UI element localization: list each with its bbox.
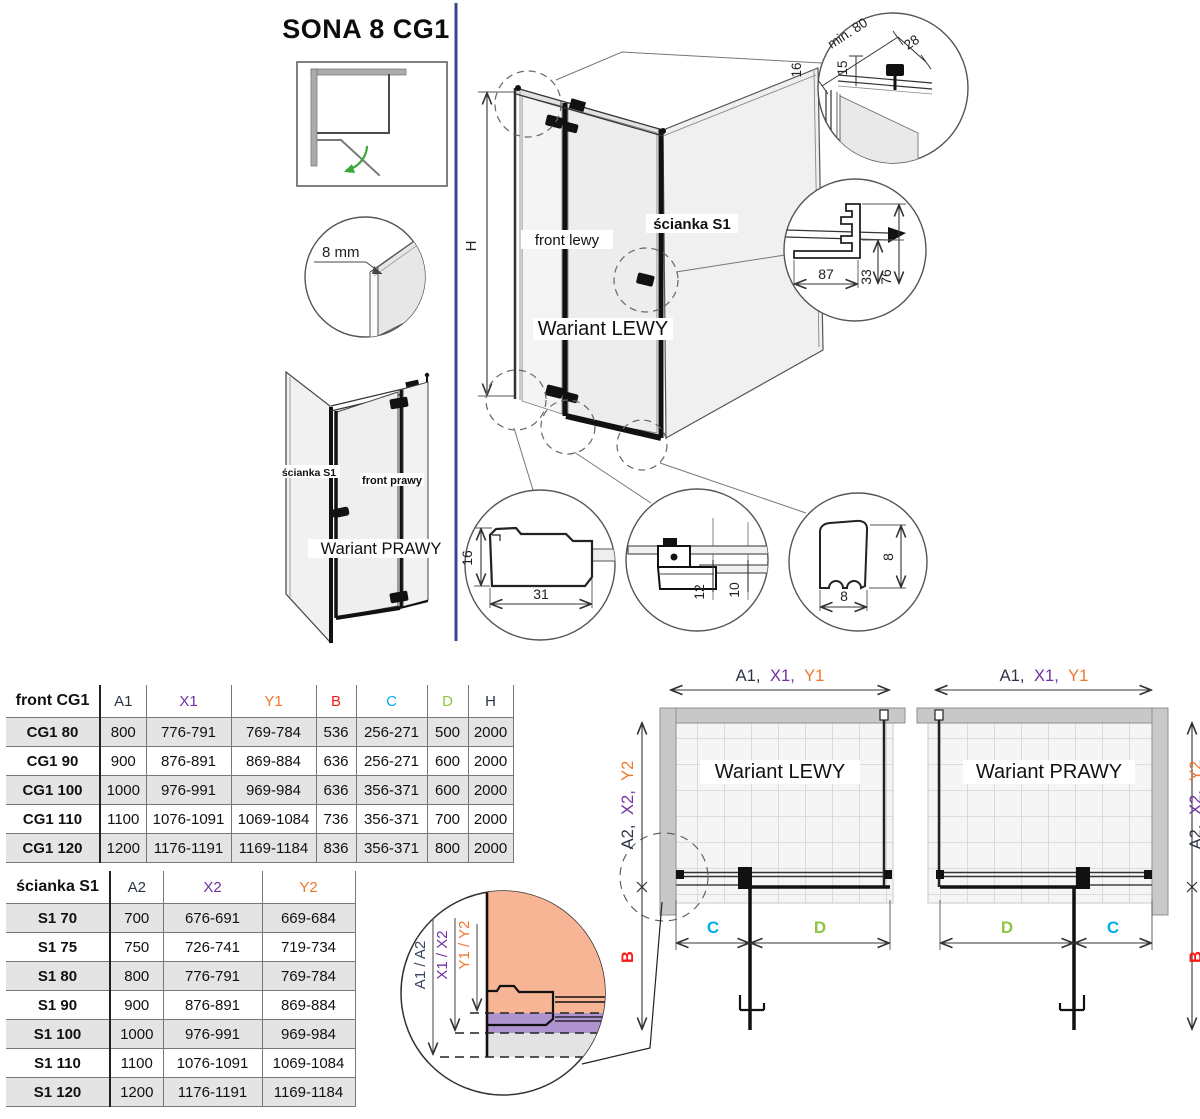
cell: 750 (110, 933, 163, 962)
row-label: S1 75 (6, 933, 110, 962)
row-label: CG1 80 (6, 718, 100, 747)
row-label: S1 70 (6, 904, 110, 933)
dim-x2: X2, (1187, 790, 1200, 815)
cell: 1069-1084 (231, 805, 316, 834)
table-row: S1 80 800 776-791 769-784 (6, 962, 355, 991)
cell: 969-984 (262, 1020, 355, 1049)
range-y1y2-label: Y1 / Y2 (456, 921, 473, 970)
range-x1x2-label: X1 / X2 (434, 930, 451, 979)
dim-a2: A2, (619, 825, 637, 850)
cell: 1169-1184 (231, 834, 316, 863)
cell: 676-691 (163, 904, 262, 933)
glass-thickness-label: 8 mm (322, 244, 360, 261)
glass-thickness-detail: 8 mm (305, 217, 430, 341)
detail-bottom-rail: 12 10 (626, 489, 768, 631)
table-title: front CG1 (6, 685, 100, 718)
wariant-prawy-topview: A1, X1, Y1 A2, X2, Y2 B D C Wariant PRAW… (917, 667, 1200, 1030)
cell: 1100 (100, 805, 146, 834)
cell: 1000 (100, 776, 146, 805)
dim-16: 16 (459, 550, 475, 566)
cell: 769-784 (262, 962, 355, 991)
row-label: S1 120 (6, 1078, 110, 1107)
wariant-lewy-label: Wariant LEWY (538, 318, 668, 340)
pivot-hardware (738, 867, 752, 889)
cell: 700 (110, 904, 163, 933)
cell: 726-741 (163, 933, 262, 962)
cell: 976-991 (146, 776, 231, 805)
wariant-lewy-3d: H front lewy (463, 52, 823, 513)
dim-y2: Y2 (1187, 761, 1200, 781)
cell: 1176-1191 (146, 834, 231, 863)
dim-8-width: 8 (840, 588, 848, 604)
dim-87: 87 (818, 266, 834, 282)
cell: 869-884 (231, 747, 316, 776)
row-label: CG1 90 (6, 747, 100, 776)
pivot-hardware (1076, 867, 1090, 889)
cell: 776-791 (163, 962, 262, 991)
range-zone-a (487, 1033, 617, 1057)
cell: 1176-1191 (163, 1078, 262, 1107)
wariant-prawy-label: Wariant PRAWY (976, 761, 1122, 783)
cell: 1069-1084 (262, 1049, 355, 1078)
dim-x1: X1, (770, 667, 795, 685)
dim-a1x1y1: A1, X1, Y1 (1000, 667, 1089, 685)
scianka-s1-label: ścianka S1 (653, 216, 731, 233)
dim-x2: X2, (619, 790, 637, 815)
dim-76: 76 (878, 269, 894, 285)
cell: 636 (316, 747, 356, 776)
cell: 1100 (110, 1049, 163, 1078)
cell: 1076-1091 (163, 1049, 262, 1078)
detail-wall-profile: 16 31 (459, 490, 618, 640)
cell: 736 (316, 805, 356, 834)
front-prawy-label: front prawy (362, 475, 423, 487)
door-handle (740, 995, 764, 1010)
cell: 1200 (110, 1078, 163, 1107)
dim-C: C (1107, 918, 1119, 937)
cell: 800 (100, 718, 146, 747)
door-handle (1060, 995, 1084, 1010)
cell: 900 (110, 991, 163, 1020)
table-row: S1 120 1200 1176-1191 1169-1184 (6, 1078, 355, 1107)
cell: 836 (316, 834, 356, 863)
dim-a2x2y2: A2, X2, Y2 (1187, 761, 1200, 850)
dim-y1: Y1 (1068, 667, 1088, 685)
col-A2: A2 (110, 871, 163, 904)
cell: 869-884 (262, 991, 355, 1020)
cell: 1169-1184 (262, 1078, 355, 1107)
col-X2: X2 (163, 871, 262, 904)
dim-B: B (619, 951, 637, 963)
cell: 669-684 (262, 904, 355, 933)
row-label: CG1 110 (6, 805, 100, 834)
mounting-range-detail: A1 / A2 X1 / X2 Y1 / Y2 (401, 888, 662, 1095)
dim-12: 12 (691, 584, 707, 600)
dim-H: H (463, 241, 480, 252)
dim-C: C (707, 918, 719, 937)
col-Y2: Y2 (262, 871, 355, 904)
dim-a1x1y1: A1, X1, Y1 (736, 667, 825, 685)
col-X1: X1 (146, 685, 231, 718)
cell: 776-791 (146, 718, 231, 747)
row-label: CG1 100 (6, 776, 100, 805)
detail-handle-profile: 87 33 76 (784, 179, 926, 321)
dim-33: 33 (858, 269, 874, 285)
row-label: CG1 120 (6, 834, 100, 863)
dim-16-top: 16 (789, 62, 804, 77)
dim-x1: X1, (1034, 667, 1059, 685)
dim-D: D (814, 918, 826, 937)
dim-10: 10 (726, 582, 742, 598)
table-row: S1 100 1000 976-991 969-984 (6, 1020, 355, 1049)
table-row: S1 75 750 726-741 719-734 (6, 933, 355, 962)
table-row: S1 110 1100 1076-1091 1069-1084 (6, 1049, 355, 1078)
row-label: S1 90 (6, 991, 110, 1020)
dim-8-height: 8 (880, 553, 896, 561)
cell: 536 (316, 718, 356, 747)
cell: 876-891 (146, 747, 231, 776)
detail-seal-profile: 8 8 (789, 493, 927, 631)
row-label: S1 100 (6, 1020, 110, 1049)
col-A1: A1 (100, 685, 146, 718)
wariant-lewy-label: Wariant LEWY (715, 761, 845, 783)
cell: 1000 (110, 1020, 163, 1049)
dim-y1: Y1 (804, 667, 824, 685)
dim-a2x2y2: A2, X2, Y2 (619, 761, 637, 850)
col-B: B (316, 685, 356, 718)
top-view-icon (297, 62, 447, 186)
range-a1a2-label: A1 / A2 (412, 941, 429, 989)
dim-B: B (1187, 951, 1200, 963)
cell: 769-784 (231, 718, 316, 747)
cell: 969-984 (231, 776, 316, 805)
scianka-s1-label: ścianka S1 (282, 467, 336, 479)
cell: 1200 (100, 834, 146, 863)
cell: 1076-1091 (146, 805, 231, 834)
row-label: S1 110 (6, 1049, 110, 1078)
table-row: S1 70 700 676-691 669-684 (6, 904, 355, 933)
row-label: S1 80 (6, 962, 110, 991)
technical-sheet: SONA 8 CG1 (0, 0, 1200, 1119)
cell: 800 (110, 962, 163, 991)
dim-a2: A2, (1187, 825, 1200, 850)
cell: 976-991 (163, 1020, 262, 1049)
dim-D: D (1001, 918, 1013, 937)
wariant-prawy-label: Wariant PRAWY (321, 540, 442, 558)
dim-a1: A1, (1000, 667, 1025, 685)
top-view-diagrams: A1, X1, Y1 A2, X2, Y2 B C D Wariant LEWY (400, 660, 1200, 1119)
col-Y1: Y1 (231, 685, 316, 718)
cell: 900 (100, 747, 146, 776)
wariant-lewy-topview: A1, X1, Y1 A2, X2, Y2 B C D Wariant LEWY (619, 667, 905, 1030)
cell: 719-734 (262, 933, 355, 962)
front-lewy-label: front lewy (535, 232, 600, 249)
scianka-s1-table: ścianka S1 A2 X2 Y2 S1 70 700 676-691 66… (6, 871, 356, 1107)
cell: 636 (316, 776, 356, 805)
dim-31: 31 (533, 586, 549, 602)
dim-y2: Y2 (619, 761, 637, 781)
table-row: S1 90 900 876-891 869-884 (6, 991, 355, 1020)
table-title: ścianka S1 (6, 871, 110, 904)
cell: 876-891 (163, 991, 262, 1020)
dim-a1: A1, (736, 667, 761, 685)
table-header-row: ścianka S1 A2 X2 Y2 (6, 871, 355, 904)
top-drawings: 8 mm ścianka S1 (0, 0, 1200, 660)
dim-15: 15 (835, 60, 850, 75)
